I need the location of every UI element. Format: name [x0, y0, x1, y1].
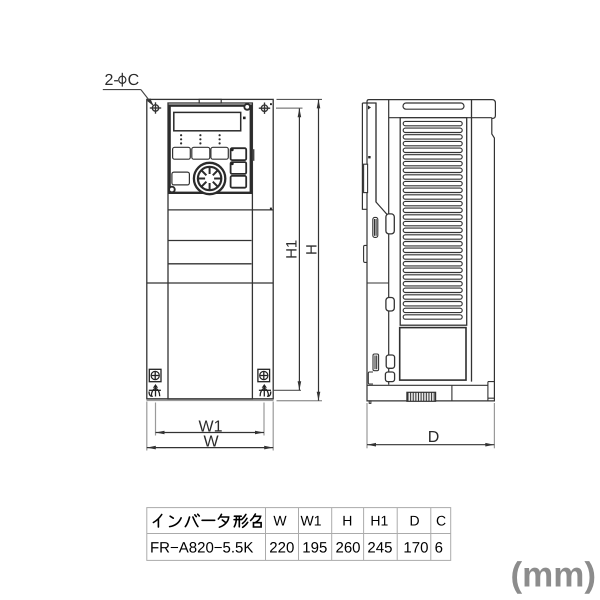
svg-text:C: C	[128, 72, 140, 89]
svg-text:170: 170	[403, 540, 428, 557]
svg-text:260: 260	[336, 540, 361, 557]
svg-text:D: D	[410, 513, 420, 529]
svg-text:D: D	[428, 429, 440, 446]
svg-text:W: W	[273, 513, 287, 529]
svg-text:H: H	[303, 244, 320, 255]
svg-text:220: 220	[269, 540, 294, 557]
svg-text:245: 245	[367, 540, 392, 557]
svg-text:C: C	[436, 513, 446, 529]
svg-text:(mm): (mm)	[510, 556, 596, 595]
svg-text:H1: H1	[370, 513, 388, 529]
svg-text:W: W	[203, 433, 219, 450]
svg-text:195: 195	[302, 540, 327, 557]
svg-text:FR−A820−5.5K: FR−A820−5.5K	[150, 540, 253, 557]
svg-text:2-: 2-	[105, 72, 119, 89]
svg-text:H: H	[342, 513, 352, 529]
svg-text:W1: W1	[301, 513, 322, 529]
svg-text:6: 6	[435, 540, 443, 557]
svg-text:H1: H1	[283, 240, 300, 259]
